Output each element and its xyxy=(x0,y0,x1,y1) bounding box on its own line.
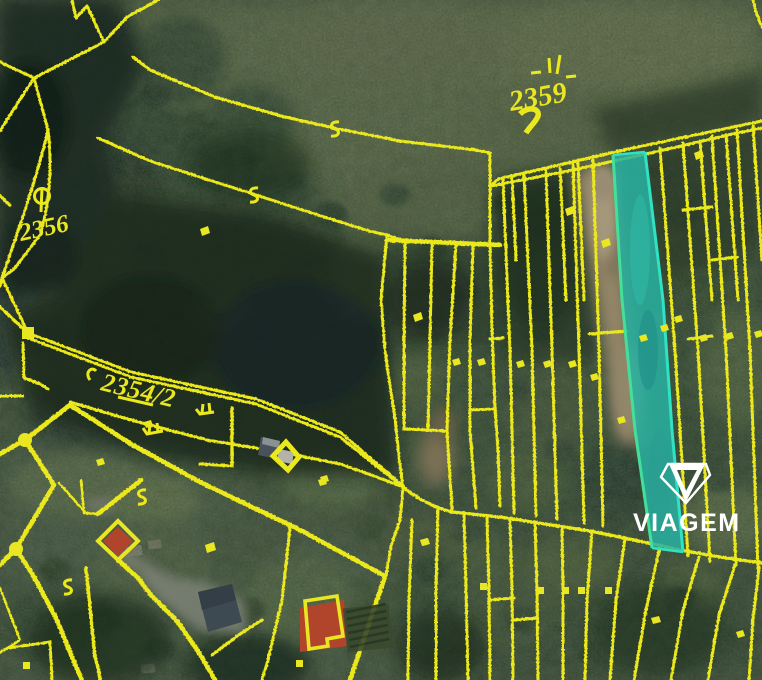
svg-text:VIAGEM: VIAGEM xyxy=(633,509,741,537)
